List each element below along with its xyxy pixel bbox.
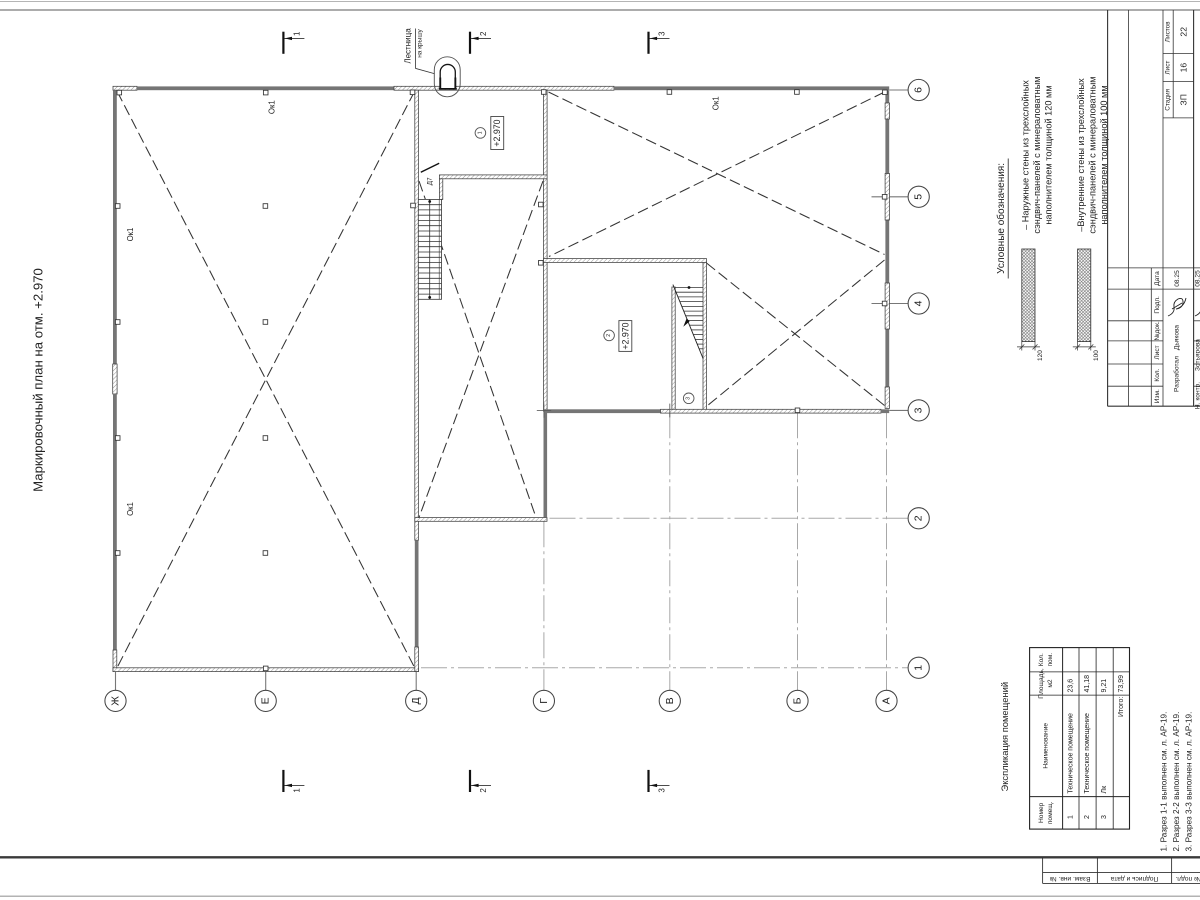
svg-text:3: 3	[658, 31, 667, 36]
svg-text:16: 16	[1179, 63, 1189, 73]
svg-text:Маркировочный план на отм. +2.: Маркировочный план на отм. +2.970	[31, 268, 46, 492]
svg-text:22: 22	[1179, 27, 1189, 37]
svg-text:В: В	[664, 697, 676, 704]
svg-text:9,21: 9,21	[1101, 679, 1108, 693]
svg-text:Лист: Лист	[1154, 345, 1161, 359]
svg-text:Итого:: Итого:	[1118, 697, 1125, 717]
svg-text:Ж: Ж	[110, 696, 122, 706]
svg-text:Д7: Д7	[427, 177, 434, 185]
svg-text:пом.: пом.	[1047, 653, 1054, 667]
svg-text:5: 5	[913, 194, 925, 200]
svg-text:2: 2	[479, 31, 488, 36]
svg-text:Лист: Лист	[1165, 61, 1172, 75]
svg-text:Дьякова: Дьякова	[1174, 325, 1181, 351]
svg-text:Лестница: Лестница	[403, 28, 412, 64]
svg-text:3: 3	[658, 788, 667, 793]
svg-text:Дата: Дата	[1154, 271, 1161, 286]
svg-text:Е: Е	[260, 697, 272, 704]
svg-text:Условные обозначения:: Условные обозначения:	[995, 163, 1007, 274]
svg-text:– Наружные стены из трехслойны: – Наружные стены из трехслойных	[1020, 80, 1030, 230]
svg-text:1: 1	[293, 31, 302, 36]
svg-text:Взам. инв. №: Взам. инв. №	[1050, 875, 1091, 882]
svg-text:Техническое помещение: Техническое помещение	[1084, 713, 1091, 794]
svg-text:Лк: Лк	[1101, 785, 1108, 794]
svg-text:Г: Г	[538, 698, 550, 704]
svg-text:+2.970: +2.970	[492, 119, 502, 146]
svg-text:Ок1: Ок1	[126, 228, 135, 242]
svg-text:Листов: Листов	[1165, 21, 1172, 42]
svg-text:Площадь,: Площадь,	[1038, 668, 1045, 699]
svg-text:Изм.: Изм.	[1154, 389, 1161, 403]
svg-text:6: 6	[913, 87, 925, 93]
svg-text:Ок1: Ок1	[268, 100, 277, 114]
svg-text:Стадия: Стадия	[1165, 88, 1172, 110]
svg-text:08.25: 08.25	[1174, 270, 1181, 287]
svg-text:2: 2	[913, 515, 925, 521]
svg-text:23,6: 23,6	[1067, 679, 1074, 693]
svg-text:Экспликация помещений: Экспликация помещений	[999, 682, 1010, 792]
svg-text:Зотьярова: Зотьярова	[1194, 339, 1200, 371]
svg-text:Наименование: Наименование	[1043, 723, 1050, 769]
svg-text:Ок1: Ок1	[126, 502, 135, 516]
svg-text:08.25: 08.25	[1194, 270, 1200, 287]
svg-text:на крышу: на крышу	[416, 28, 423, 57]
svg-text:м2: м2	[1047, 679, 1054, 688]
svg-text:100: 100	[1093, 350, 1100, 361]
svg-text:3. Разрез 3-3 выполнен см. л.: 3. Разрез 3-3 выполнен см. л. АР-19.	[1185, 712, 1194, 852]
svg-text:3: 3	[686, 397, 692, 400]
svg-text:1: 1	[1067, 815, 1074, 819]
svg-text:3: 3	[913, 407, 925, 413]
svg-text:Кол.: Кол.	[1038, 653, 1045, 666]
svg-text:+2.970: +2.970	[620, 322, 630, 349]
svg-text:Разработал: Разработал	[1173, 356, 1181, 392]
svg-text:Кол.: Кол.	[1154, 368, 1161, 381]
svg-text:Ок1: Ок1	[712, 96, 721, 110]
svg-text:наполнителем толщиной 120 мм: наполнителем толщиной 120 мм	[1043, 85, 1053, 224]
svg-text:помещ.: помещ.	[1047, 801, 1054, 824]
svg-text:Инв. № подл.: Инв. № подл.	[1175, 875, 1200, 882]
svg-text:Б: Б	[792, 697, 804, 704]
svg-text:73,99: 73,99	[1118, 675, 1125, 693]
svg-text:1. Разрез 1-1 выполнен см. л.: 1. Разрез 1-1 выполнен см. л. АР-19.	[1159, 712, 1168, 852]
svg-text:120: 120	[1037, 350, 1044, 361]
svg-text:ЗП: ЗП	[1179, 94, 1189, 105]
svg-text:1: 1	[293, 788, 302, 793]
svg-text:2: 2	[479, 788, 488, 793]
svg-text:4: 4	[913, 300, 925, 306]
svg-text:1: 1	[477, 131, 483, 134]
svg-text:А: А	[881, 697, 893, 704]
svg-text:2: 2	[1084, 815, 1091, 819]
svg-text:Подпись и дата: Подпись и дата	[1110, 875, 1158, 882]
svg-text:сэндвич-панелей с минераловатн: сэндвич-панелей с минераловатным	[1088, 76, 1098, 233]
svg-text:2. Разрез 2-2 выполнен см. л.: 2. Разрез 2-2 выполнен см. л. АР-19.	[1172, 712, 1181, 852]
svg-text:№док.: №док.	[1154, 321, 1161, 340]
svg-text:2: 2	[606, 334, 612, 337]
svg-text:Номер: Номер	[1038, 802, 1045, 823]
svg-text:Д: Д	[410, 697, 422, 704]
svg-text:Техническое помещение: Техническое помещение	[1067, 713, 1074, 794]
svg-text:Подп.: Подп.	[1154, 296, 1161, 314]
svg-text:41,18: 41,18	[1084, 675, 1091, 693]
svg-text:Н. контр.: Н. контр.	[1194, 382, 1200, 409]
svg-text:–Внутренние стены из трехслойн: –Внутренние стены из трехслойных	[1076, 78, 1086, 232]
svg-text:сэндвич-панелей с минераловатн: сэндвич-панелей с минераловатным	[1032, 76, 1042, 233]
svg-text:1: 1	[913, 665, 925, 671]
svg-text:3: 3	[1101, 815, 1108, 819]
